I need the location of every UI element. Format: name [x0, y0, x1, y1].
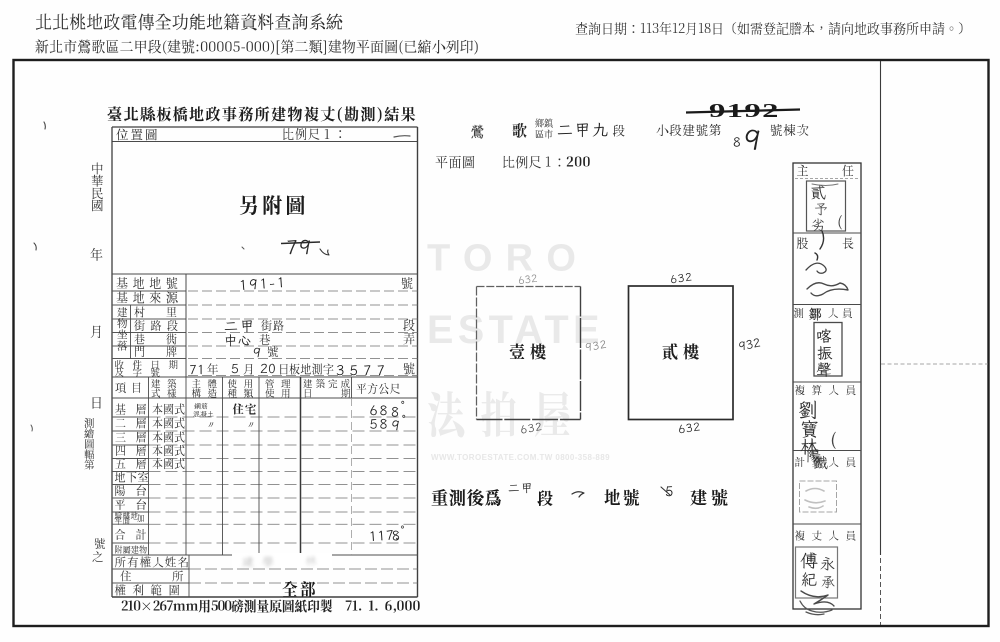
- svg-text:TORO: TORO: [427, 238, 589, 280]
- svg-text:WWW.TOROESTATE.COM.TW 0800-358: WWW.TOROESTATE.COM.TW 0800-358-889: [431, 453, 610, 462]
- svg-text:ESTATE: ESTATE: [427, 308, 604, 352]
